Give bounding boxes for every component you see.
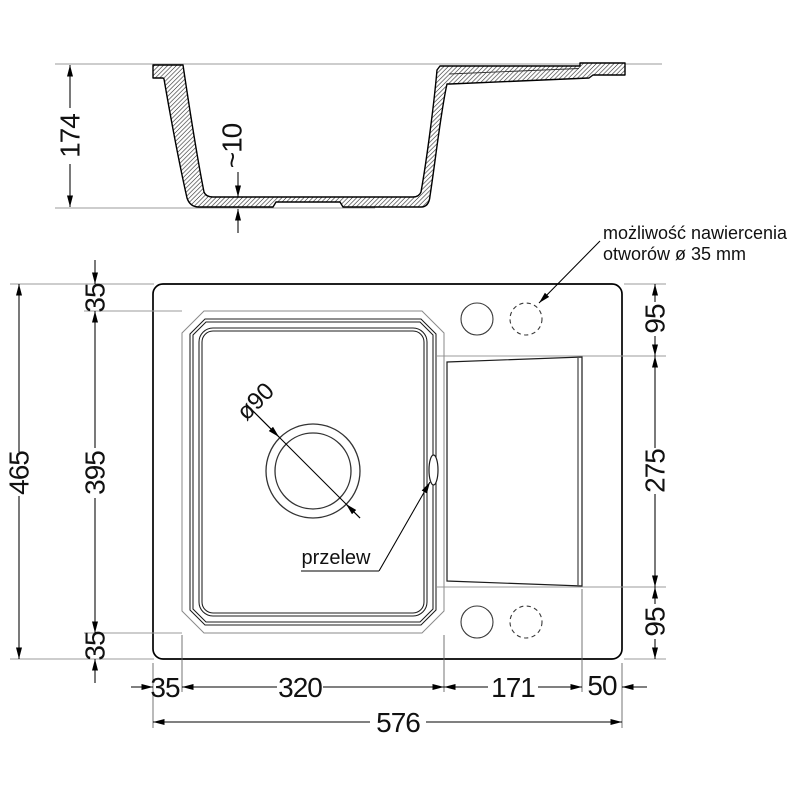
technical-drawing-page: 174 ~10 465 35 395 35 95 275 95 35 320 1… [0,0,800,800]
dim-bowl-width: 320 [278,672,322,703]
overflow-slot [429,455,438,485]
sink-dimension-drawing: 174 ~10 465 35 395 35 95 275 95 35 320 1… [0,0,800,800]
dim-top-offset: 35 [79,283,110,313]
optional-hole-top [510,303,542,335]
dim-overall-width: 576 [376,707,420,738]
drainboard [447,357,582,586]
drill-note-line1: możliwość nawiercenia [603,223,788,243]
dim-section-depth: 174 [54,114,85,158]
faucet-hole-bottom [461,606,493,638]
optional-hole-bottom [510,606,542,638]
dim-left-margin: 35 [150,672,180,703]
dim-drainboard-width: 171 [491,672,535,703]
drill-note-line2: otworów ø 35 mm [603,244,746,264]
dim-bowl-length: 395 [79,451,110,495]
faucet-hole-top [461,303,493,335]
dim-right-bottom: 95 [639,607,670,637]
dim-right-margin: 50 [587,670,617,701]
dim-drainboard-length: 275 [639,449,670,493]
dim-right-top: 95 [639,304,670,334]
dim-bottom-thickness: ~10 [216,123,247,168]
overflow-label: przelew [302,547,371,569]
dim-bottom-offset: 35 [79,631,110,661]
dim-overall-height: 465 [3,451,34,495]
